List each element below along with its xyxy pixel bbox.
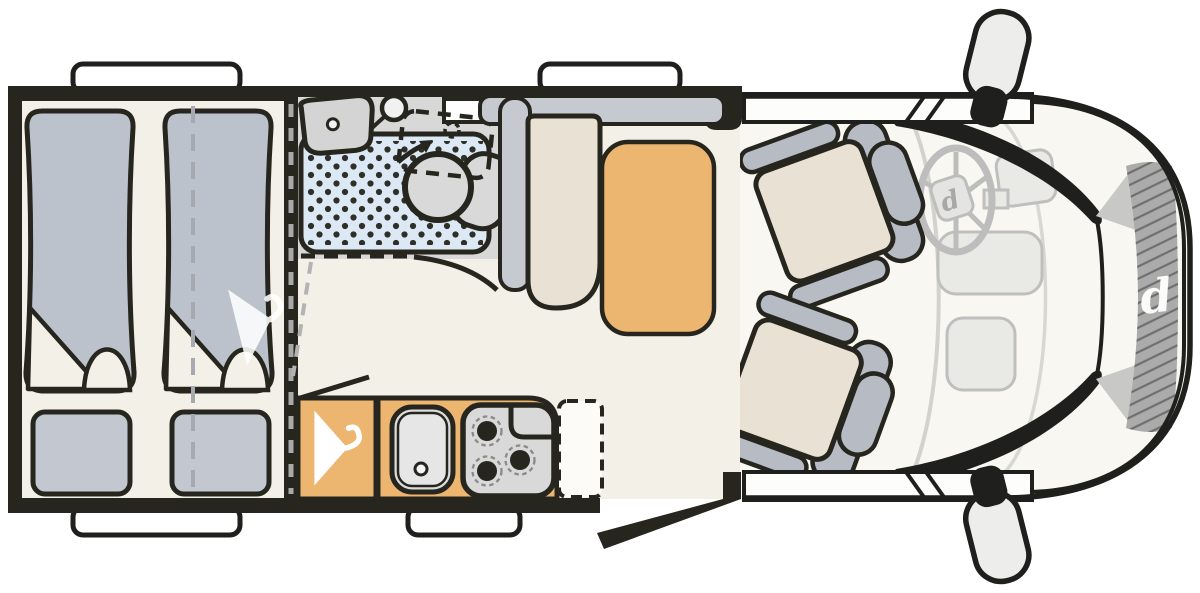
kitchen [298, 398, 602, 499]
bench-seat [528, 116, 600, 308]
brand-d-logo: d [1137, 267, 1176, 325]
engine-cover [947, 318, 1015, 390]
pillow-left [33, 412, 130, 494]
burner [477, 461, 497, 481]
sink-drain [415, 463, 427, 475]
pillow-right [172, 412, 269, 494]
bed-right [164, 111, 272, 391]
floorplan-page: d d [0, 0, 1200, 593]
washbasin [299, 92, 377, 157]
wall-left [8, 86, 22, 513]
toilet-bowl [405, 154, 471, 220]
bed-left [26, 111, 134, 391]
motorhome-floorplan: d d [0, 0, 1200, 593]
burner [477, 421, 497, 441]
worktop-extension-dashed [559, 401, 602, 497]
washbasin-drain [327, 118, 339, 130]
burner [510, 450, 530, 470]
cab-section: d d [706, 6, 1190, 587]
dinette-table [602, 142, 714, 334]
steering-column [984, 190, 1008, 208]
